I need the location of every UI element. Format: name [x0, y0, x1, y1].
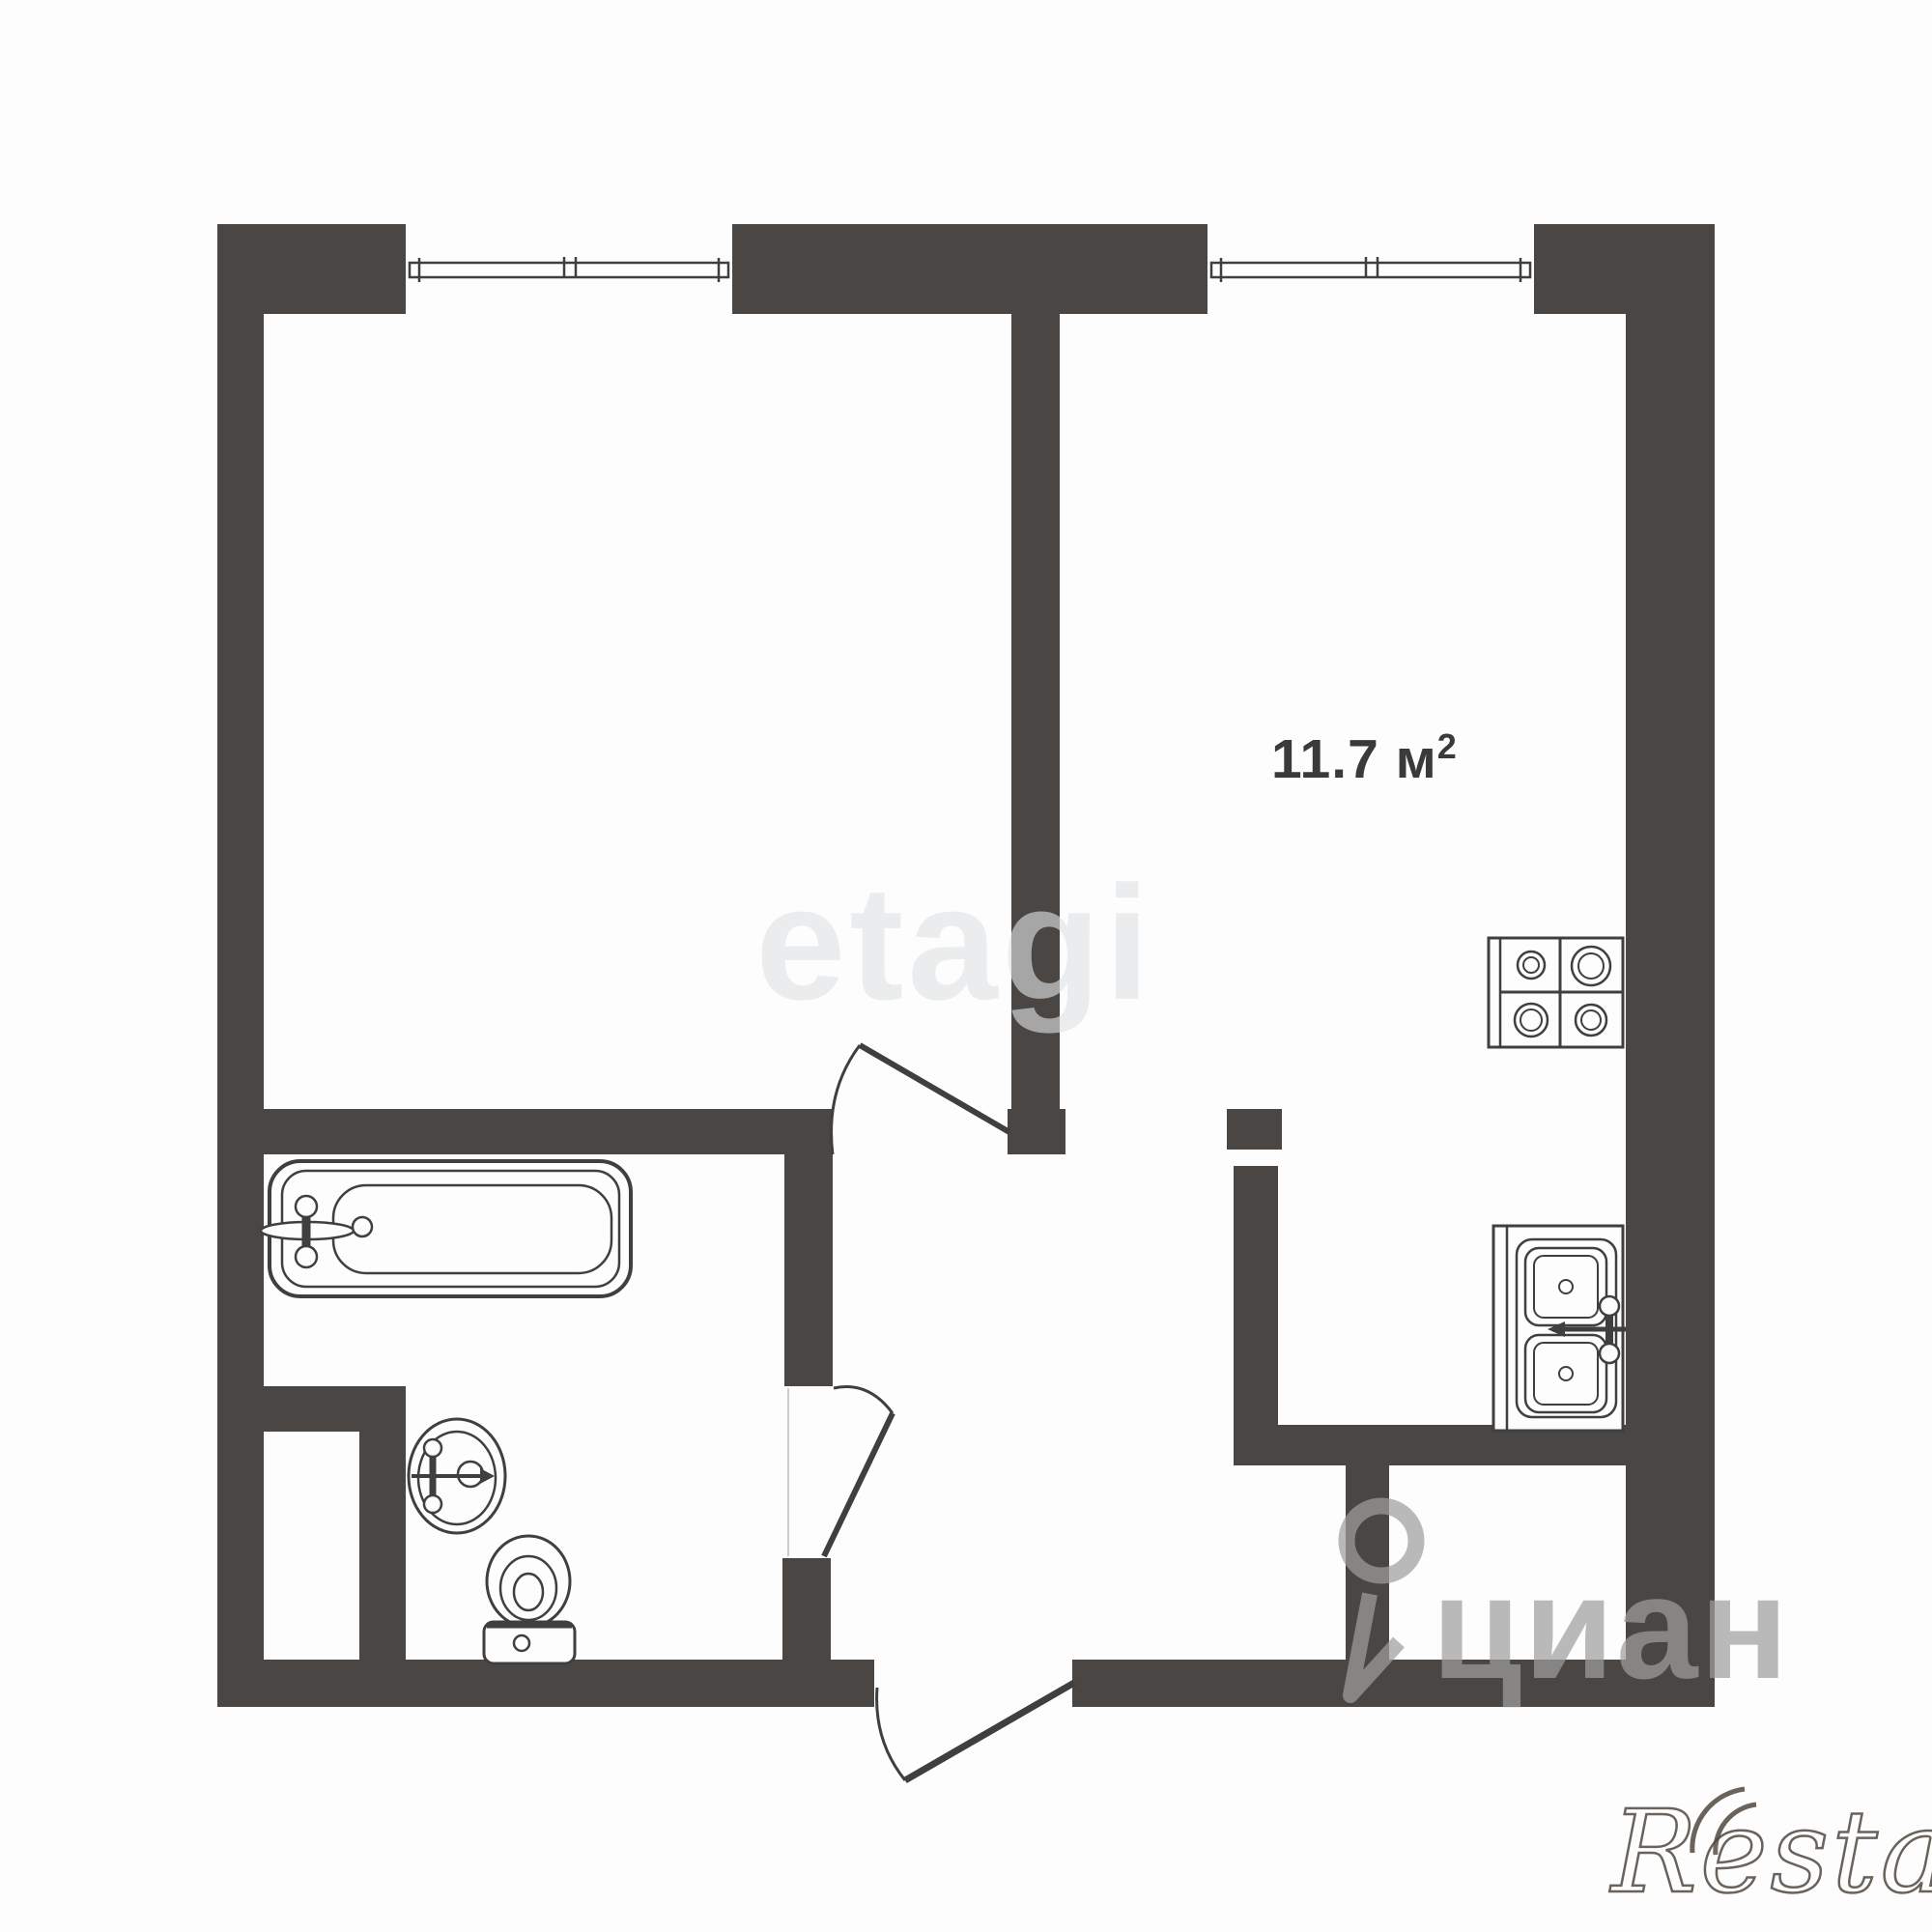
washbasin-icon — [409, 1419, 505, 1533]
watermark-restate: Restate — [1611, 1785, 1932, 1918]
room-area-value: 11.7 м — [1271, 728, 1437, 790]
bathroom-door-icon — [788, 1386, 893, 1556]
interior-door-icon — [832, 1045, 1009, 1154]
bathtub-icon — [261, 1161, 631, 1296]
window-right-icon — [1211, 257, 1530, 282]
watermark-cian: циан — [1432, 1544, 1790, 1713]
room-area-sup: 2 — [1437, 726, 1458, 766]
window-left-icon — [410, 257, 728, 282]
stove-icon — [1489, 938, 1623, 1047]
kitchen-sink-icon — [1493, 1226, 1626, 1431]
room-area-label: 11.7 м2 — [1271, 726, 1458, 791]
floor-plan: 11.7 м2 etagi циан Restate — [0, 0, 1932, 1932]
watermark-etagi: etagi — [755, 850, 1153, 1037]
toilet-icon — [484, 1536, 575, 1663]
entrance-door-icon — [877, 1683, 1074, 1780]
